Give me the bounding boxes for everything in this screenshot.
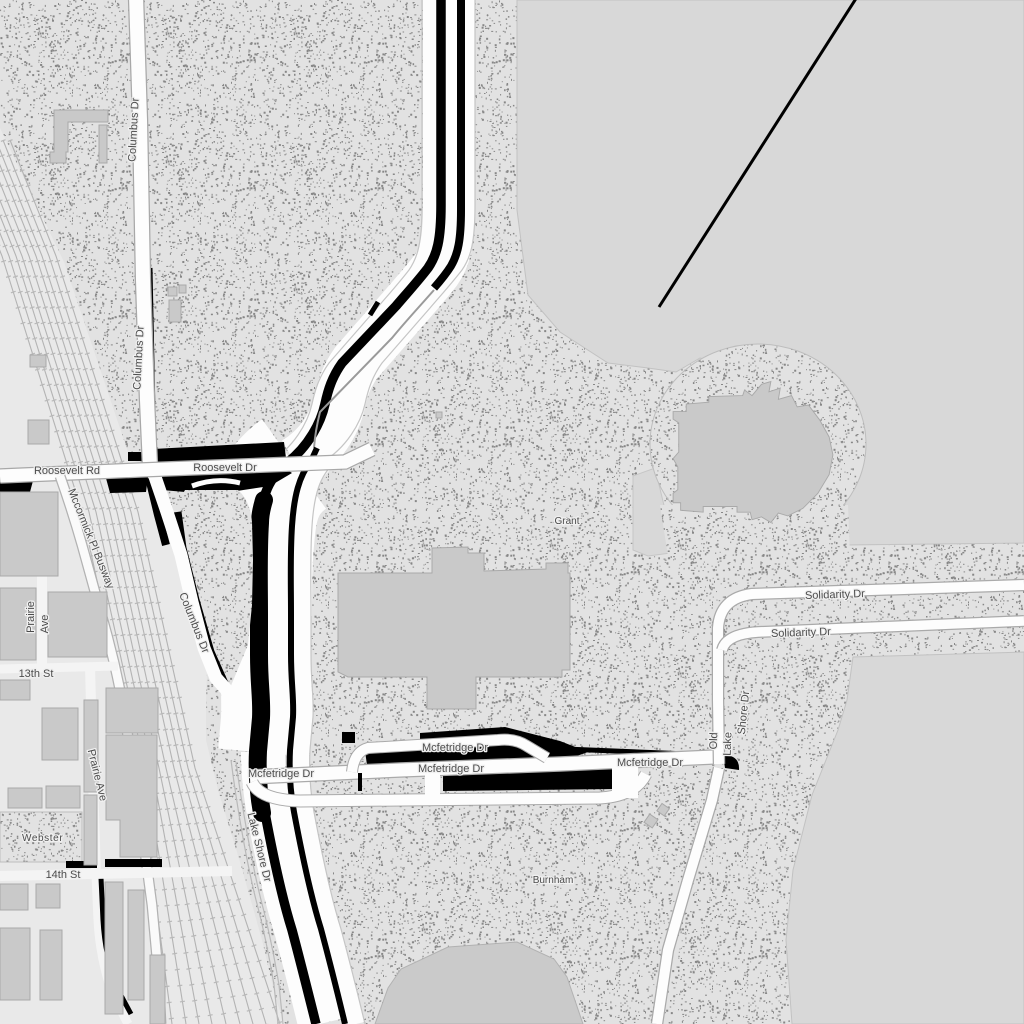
svg-text:Solidarity Dr: Solidarity Dr bbox=[805, 588, 866, 602]
svg-text:Roosevelt Dr: Roosevelt Dr bbox=[193, 462, 257, 474]
svg-text:Roosevelt Rd: Roosevelt Rd bbox=[34, 465, 100, 477]
svg-text:Lake: Lake bbox=[722, 732, 735, 756]
svg-text:Burnham: Burnham bbox=[533, 875, 574, 886]
svg-text:14th St: 14th St bbox=[46, 869, 81, 881]
svg-text:Mcfetridge Dr: Mcfetridge Dr bbox=[248, 768, 314, 780]
svg-text:Old: Old bbox=[708, 732, 721, 750]
svg-text:Grant: Grant bbox=[554, 516, 579, 527]
svg-text:Webster: Webster bbox=[22, 833, 63, 844]
svg-text:13th St: 13th St bbox=[19, 668, 54, 680]
svg-text:Mcfetridge Dr: Mcfetridge Dr bbox=[422, 742, 488, 754]
svg-text:Mcfetridge Dr: Mcfetridge Dr bbox=[617, 757, 683, 769]
svg-text:Mcfetridge Dr: Mcfetridge Dr bbox=[418, 763, 484, 775]
svg-text:Prairie: Prairie bbox=[25, 601, 37, 633]
svg-text:Ave: Ave bbox=[39, 615, 51, 634]
svg-text:Solidarity Dr: Solidarity Dr bbox=[771, 626, 832, 640]
